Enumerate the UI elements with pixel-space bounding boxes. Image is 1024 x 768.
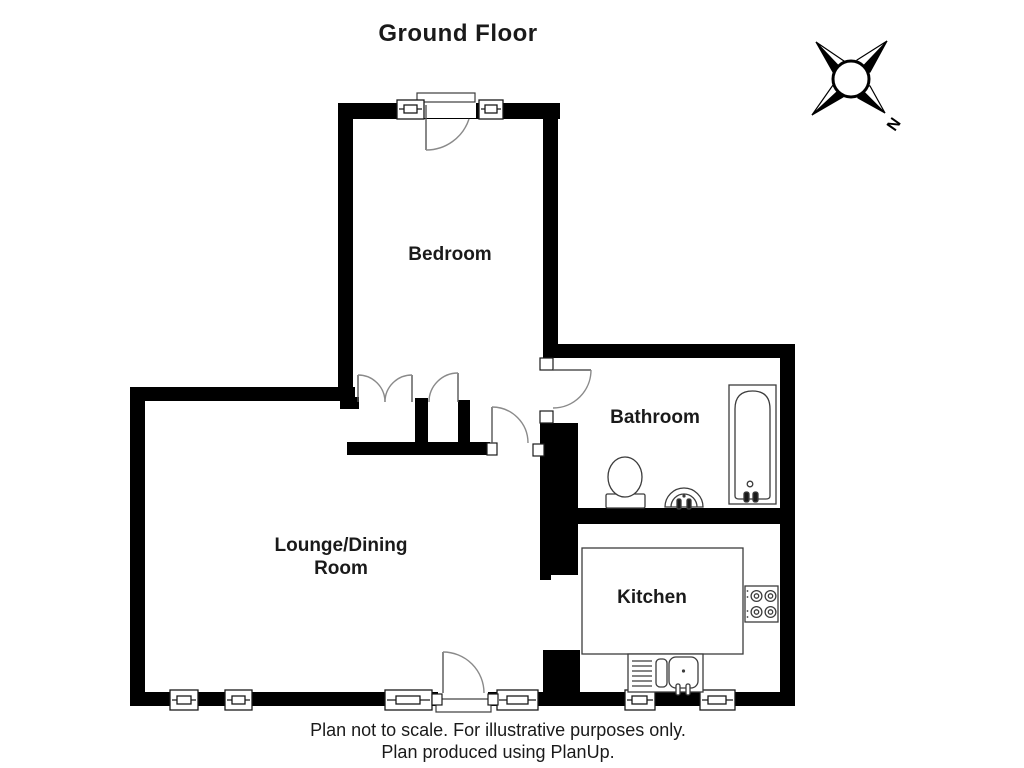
bedroom-label: Bedroom	[350, 244, 550, 266]
kitchen-label: Kitchen	[552, 587, 752, 609]
window	[385, 690, 432, 710]
window	[625, 690, 655, 710]
compass-icon: N	[812, 41, 903, 133]
window	[397, 100, 424, 119]
lounge-label: Lounge/Dining Room	[241, 534, 441, 580]
bathroom-area	[558, 358, 780, 508]
bathroom-label: Bathroom	[555, 407, 755, 429]
footer-line2: Plan produced using PlanUp.	[208, 741, 788, 763]
compass-north-label: N	[882, 114, 903, 133]
footer-disclaimer: Plan not to scale. For illustrative purp…	[208, 719, 788, 763]
window	[225, 690, 252, 710]
footer-line1: Plan not to scale. For illustrative purp…	[208, 719, 788, 741]
lounge-label-line1: Lounge/Dining	[241, 534, 441, 557]
lounge-label-line2: Room	[241, 557, 441, 580]
window	[170, 690, 198, 710]
floor-plan: Ground Floor	[0, 0, 1024, 768]
window	[497, 690, 538, 710]
window	[479, 100, 503, 119]
compass-circle	[833, 61, 869, 97]
window	[700, 690, 735, 710]
